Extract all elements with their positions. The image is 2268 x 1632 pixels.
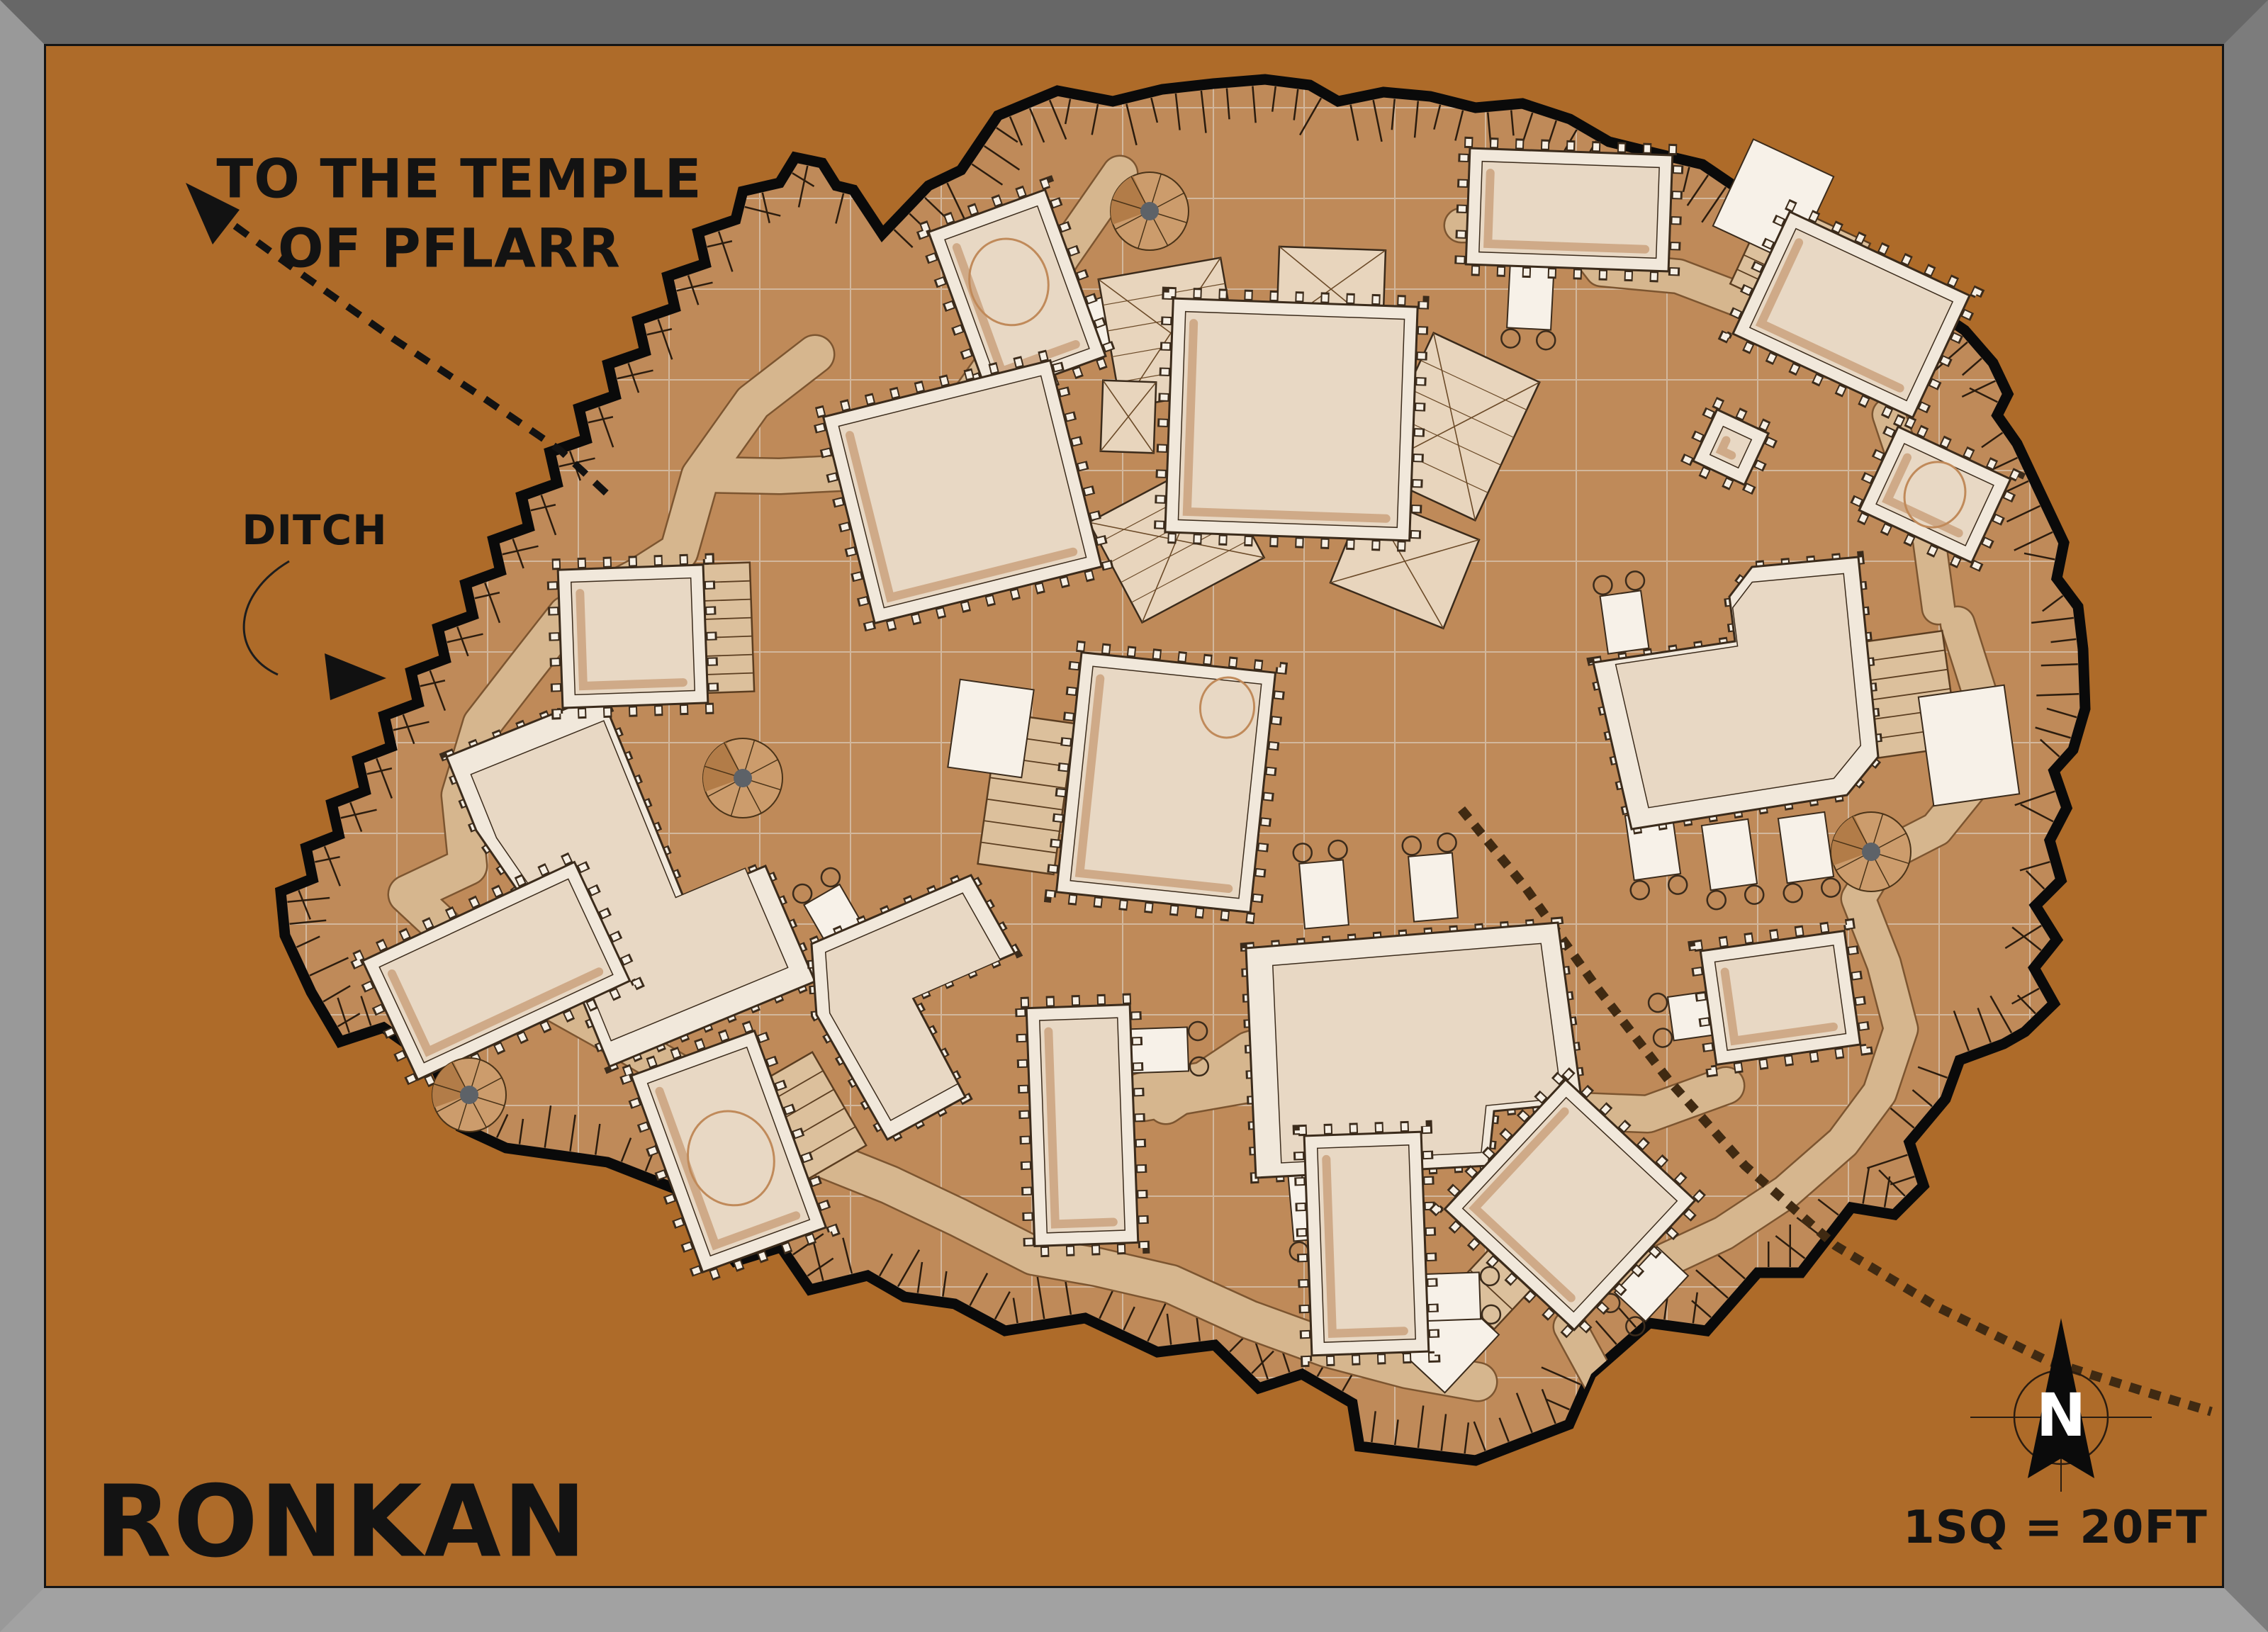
ditch-label: DITCH [242,506,387,554]
stair-landing [948,680,1033,777]
spiral-stair [1831,812,1911,891]
map-area: N TO THE TEMPLE OF PFLARR DITCH RONKAN 1… [44,44,2224,1588]
building [1694,924,1867,1071]
stair-landing [1919,685,2019,806]
temple-direction-label-line1: TO THE TEMPLE [216,147,702,210]
building [1160,293,1424,546]
roofed-annex [1101,381,1156,454]
building [1021,998,1144,1251]
building [1460,142,1678,277]
building [1298,1126,1435,1361]
settlement-name-label: RONKAN [95,1465,588,1580]
spiral-stair [703,738,782,818]
temple-direction-label-line2: OF PFLARR [278,217,621,280]
spiral-stair [432,1058,506,1132]
building [552,559,714,714]
building [1050,646,1282,918]
spiral-stair [1111,172,1189,250]
compass-north-letter: N [2036,1380,2086,1450]
map-scale-label: 1SQ = 20FT [1903,1502,2208,1554]
map-canvas: N TO THE TEMPLE OF PFLARR DITCH RONKAN 1… [44,44,2224,1588]
picture-frame: N TO THE TEMPLE OF PFLARR DITCH RONKAN 1… [0,0,2268,1632]
